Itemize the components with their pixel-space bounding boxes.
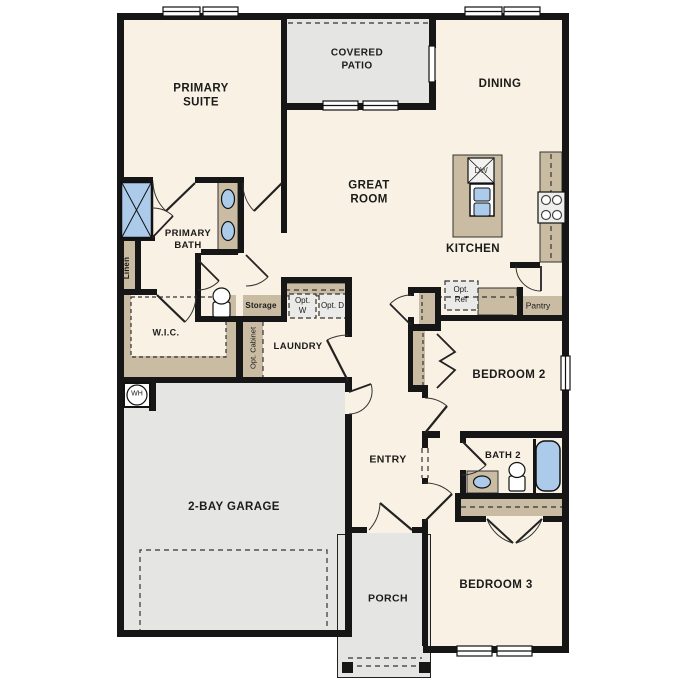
room-label-bath2: BATH 2 [482, 450, 524, 462]
sink-icon [222, 190, 235, 209]
window [163, 7, 200, 16]
room-label-primary-bath: PRIMARY BATH [156, 228, 220, 252]
tub-icon [536, 441, 560, 491]
room-label-kitchen: KITCHEN [446, 242, 500, 256]
room-label-laundry: LAUNDRY [274, 341, 323, 353]
cooktop-icon [538, 192, 565, 223]
room-label-great-room: GREAT ROOM [330, 179, 408, 208]
room-label-bedroom2: BEDROOM 2 [472, 368, 545, 382]
window [561, 356, 570, 390]
window [457, 646, 492, 656]
window [323, 101, 358, 110]
label-opt-ref: Opt. Ref [448, 285, 474, 305]
label-opt-dryer: Opt. D [321, 301, 345, 311]
toilet-icon [509, 463, 525, 492]
label-dishwasher: DW [474, 166, 487, 176]
floor-plan: PRIMARY SUITE COVERED PATIO DINING GREAT… [0, 0, 687, 687]
window [497, 646, 532, 656]
toilet-icon [213, 288, 230, 317]
kitchen-south-counter [478, 288, 517, 315]
label-opt-washer: Opt. W [291, 296, 315, 316]
label-water-heater: WH [131, 391, 143, 400]
patio-slider-door [429, 46, 435, 82]
room-label-covered-patio: COVERED PATIO [322, 48, 392, 73]
room-label-primary-suite: PRIMARY SUITE [156, 82, 246, 111]
window [465, 7, 502, 16]
porch-post [342, 662, 353, 673]
room-label-wic: W.I.C. [153, 327, 180, 338]
kitchen-sink-icon [470, 184, 494, 216]
porch-post [419, 662, 430, 673]
room-label-garage: 2-BAY GARAGE [184, 500, 284, 514]
label-linen: Linen [122, 257, 132, 279]
sink-icon [222, 222, 235, 241]
window [363, 101, 398, 110]
label-pantry: Pantry [526, 301, 551, 312]
floor-plan-drawing [0, 0, 687, 687]
window [504, 7, 540, 16]
sink-icon [474, 476, 491, 488]
window [203, 7, 238, 16]
shower-icon [121, 182, 152, 238]
room-label-porch: PORCH [368, 592, 408, 605]
room-label-entry: ENTRY [369, 453, 406, 466]
label-opt-cabinet: Opt. Cabinet [248, 327, 257, 369]
room-label-dining: DINING [479, 77, 522, 91]
label-storage: Storage [245, 301, 276, 311]
room-label-bedroom3: BEDROOM 3 [459, 578, 532, 592]
